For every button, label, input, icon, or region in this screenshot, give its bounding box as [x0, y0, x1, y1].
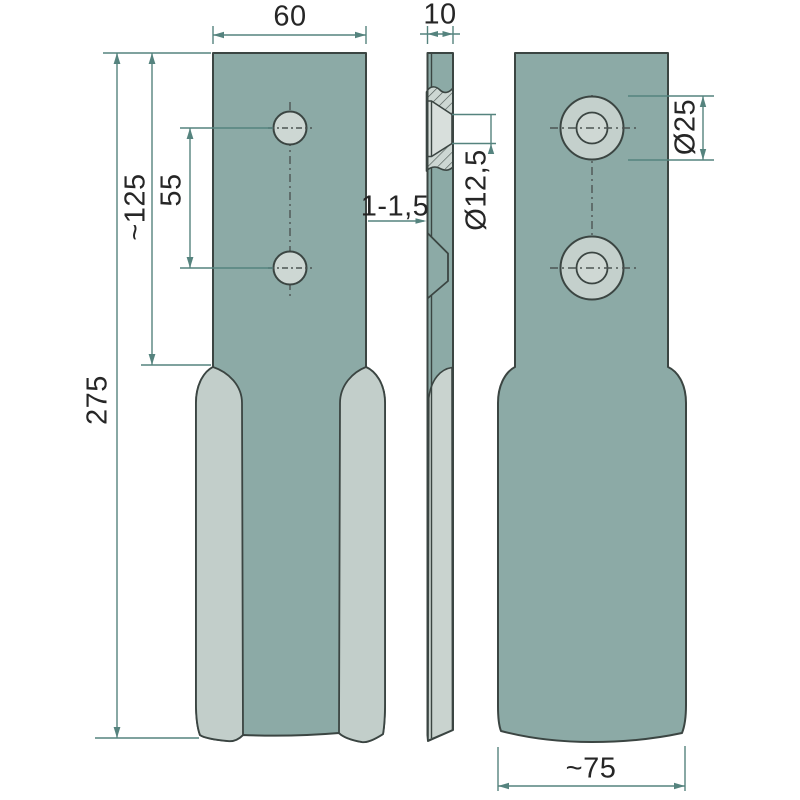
side-view-section-cut [427, 86, 454, 173]
front-view-right-bevel [339, 367, 385, 742]
technical-drawing: 60 10 275 ~125 55 1-1,5 Ø12,5 Ø25 ~75 [0, 0, 800, 800]
rear-view-blade [498, 53, 686, 742]
dim-label-total-length: 275 [84, 375, 113, 425]
side-view-blade [427, 53, 454, 741]
dim-label-thickness: 10 [423, 1, 456, 30]
dim-label-upper-length: ~125 [122, 173, 151, 240]
front-view-blade [196, 53, 385, 742]
dim-label-hole-diameter: Ø12,5 [463, 149, 492, 231]
dim-label-edge-thickness: 1-1,5 [361, 193, 430, 222]
dim-label-counterbore-diameter: Ø25 [672, 99, 701, 155]
front-view-left-bevel [196, 367, 243, 741]
dim-label-bottom-width: ~75 [566, 755, 617, 784]
dim-label-hole-spacing: 55 [158, 173, 187, 206]
dim-label-top-width: 60 [273, 3, 306, 32]
